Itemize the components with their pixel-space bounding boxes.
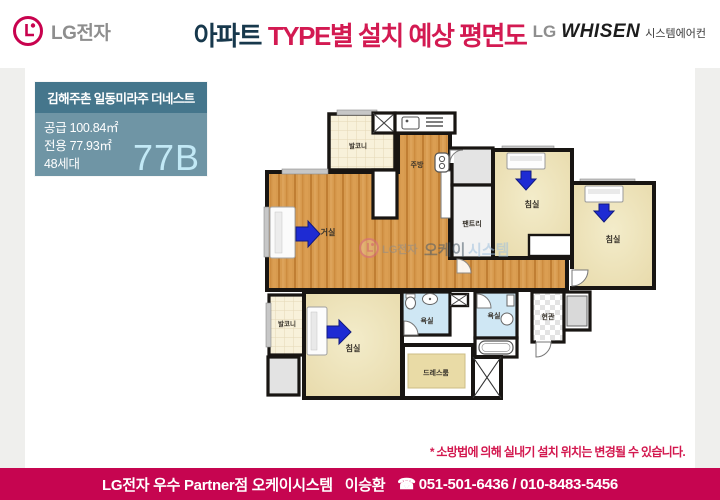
room-label-bedroom2: 침실	[606, 234, 621, 244]
sink-icon-bath2	[507, 295, 514, 306]
page-title-dark: 아파트	[194, 21, 261, 51]
whisen-logo: LG WHISEN 시스템에어컨	[533, 21, 706, 43]
closet-bedroom1	[529, 235, 572, 256]
whisen-lg-text: LG	[533, 22, 557, 42]
window-balcony-bottom	[266, 303, 271, 347]
stove-hob-icon	[435, 153, 449, 172]
watermark-lg-symbol-icon	[360, 239, 378, 257]
watermark-part2: 시스템	[468, 241, 509, 259]
content-card: 김해주촌 일동미라주 더네스트 공급 100.84㎡ 전용 77.93㎡ 48세…	[25, 68, 695, 468]
window-living-top	[282, 169, 328, 174]
ac-unit-bedroom3	[307, 307, 327, 355]
lg-logo-text: LG전자	[51, 18, 110, 45]
window-living-left	[264, 207, 269, 257]
duct-box-top	[373, 113, 395, 133]
lg-symbol-icon	[12, 15, 44, 47]
unit-info-box: 김해주촌 일동미라주 더네스트 공급 100.84㎡ 전용 77.93㎡ 48세…	[35, 82, 207, 176]
page-title-accent: TYPE별 설치 예상 평면도	[268, 21, 526, 51]
room-label-dressroom: 드레스룸	[423, 368, 449, 377]
kitchen-counter	[395, 113, 455, 133]
footer-phone-number: 051-501-6436 / 010-8483-5456	[419, 476, 618, 493]
disclaimer-text: * 소방법에 의해 실내기 설치 위치는 변경될 수 있습니다.	[430, 443, 685, 460]
ac-unit-living	[270, 207, 295, 258]
room-label-kitchen: 주방	[411, 160, 424, 169]
room-label-pantry: 팬트리	[462, 219, 481, 228]
room-label-balcony-top: 발코니	[349, 141, 367, 150]
page-title: 아파트TYPE별 설치 예상 평면도	[194, 16, 527, 53]
room-label-bedroom1: 침실	[525, 199, 540, 209]
room-vestibule	[452, 148, 493, 185]
duct-box-small	[450, 294, 468, 306]
room-label-bath2: 욕실	[488, 311, 501, 320]
lg-electronics-logo: LG전자	[12, 15, 110, 47]
supply-area: 공급 100.84㎡	[44, 120, 207, 138]
footer-name-text: 이승환	[345, 474, 386, 495]
complex-name: 김해주촌 일동미라주 더네스트	[35, 82, 207, 113]
footer-bar: LG전자 우수 Partner점 오케이시스템 이승환 ☎ 051-501-64…	[0, 468, 720, 500]
phone-icon: ☎	[397, 475, 415, 493]
sink-icon-bath1	[423, 294, 438, 305]
bathtub-area	[475, 338, 517, 357]
shoe-cabinet	[567, 296, 587, 326]
watermark-part1: 오케이	[424, 242, 465, 259]
room-label-entrance: 현관	[542, 312, 555, 321]
whisen-suffix-text: 시스템에어컨	[645, 25, 706, 41]
window-balcony-top	[337, 110, 377, 115]
room-label-bath1: 욕실	[421, 316, 434, 325]
door-arc-entrance	[536, 342, 551, 357]
toilet-icon-bath1	[406, 294, 416, 309]
sink-icon	[402, 117, 419, 129]
unit-info-body: 공급 100.84㎡ 전용 77.93㎡ 48세대 77B	[35, 113, 207, 176]
bathtub-icon	[479, 341, 513, 354]
toilet-icon-bath2	[501, 313, 513, 325]
ac-unit-bedroom1	[507, 153, 545, 169]
room-label-balcony-bottom: 발코니	[278, 319, 296, 328]
wall-column	[373, 170, 397, 218]
unit-type-badge: 77B	[133, 140, 200, 176]
utility-box	[268, 357, 299, 395]
room-label-bedroom3: 침실	[346, 343, 361, 353]
watermark-lg-text: LG전자	[382, 242, 418, 256]
top-header-bar: LG전자 아파트TYPE별 설치 예상 평면도 LG WHISEN 시스템에어컨	[0, 0, 720, 68]
ac-unit-bedroom2	[585, 186, 623, 202]
duct-box-bottom	[473, 357, 501, 398]
footer-partner-text: LG전자 우수 Partner점 오케이시스템	[102, 474, 333, 495]
whisen-brand-text: WHISEN	[561, 21, 640, 43]
room-label-living: 거실	[321, 227, 336, 237]
floor-plan: 발코니 주방 거실 팬트리 침실 침실 침실 발코니 욕실 욕실 드레스룸 현관…	[230, 85, 700, 465]
footer-phone: ☎ 051-501-6436 / 010-8483-5456	[397, 475, 618, 493]
